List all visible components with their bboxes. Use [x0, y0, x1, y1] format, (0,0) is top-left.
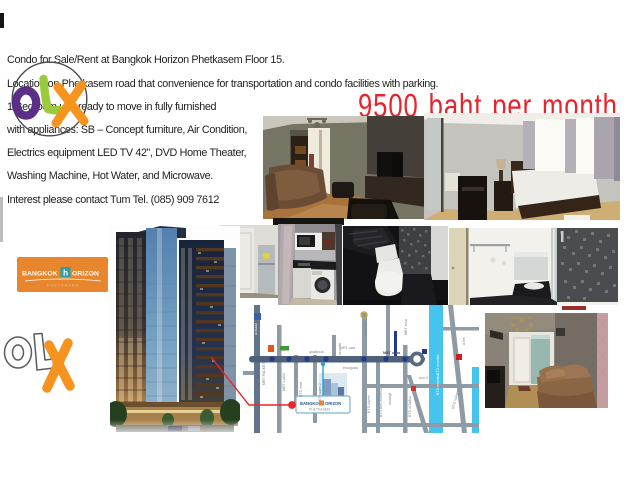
svg-text:PHETKASEM: PHETKASEM	[47, 284, 79, 288]
svg-text:a.mx 33: a.mx 33	[364, 322, 368, 335]
svg-text:BTS 8on-mowenu: BTS 8on-mowenu	[379, 388, 383, 417]
svg-text:PHETKASEM: PHETKASEM	[309, 408, 330, 412]
svg-text:a.viuuu: a.viuuu	[254, 323, 258, 335]
svg-text:anowgli: anowgli	[388, 393, 392, 405]
svg-text:MRT uais: MRT uais	[340, 346, 355, 350]
svg-text:MRT anut: MRT anut	[404, 319, 408, 335]
svg-text:ST ruuen 2: ST ruuen 2	[318, 383, 322, 401]
svg-text:BTS mnwstu: BTS mnwstu	[436, 355, 440, 375]
svg-text:MRT uana: MRT uana	[383, 351, 401, 355]
svg-text:BTS ruTadou: BTS ruTadou	[408, 396, 412, 417]
svg-text:ORIZON: ORIZON	[325, 401, 341, 406]
svg-text:BANGKOK: BANGKOK	[22, 271, 58, 278]
svg-text:quaiknua: quaiknua	[309, 350, 324, 354]
svg-text:ORIZON: ORIZON	[72, 271, 99, 278]
svg-text:enuiguaq: enuiguaq	[343, 366, 358, 370]
svg-text:BTS mnwstu: BTS mnwstu	[436, 375, 440, 395]
svg-text:wru 4: wru 4	[419, 376, 428, 380]
svg-text:h: h	[63, 268, 68, 278]
svg-text:a.lne: a.lne	[462, 337, 466, 345]
svg-text:BTS cuvnn: BTS cuvnn	[367, 395, 371, 413]
